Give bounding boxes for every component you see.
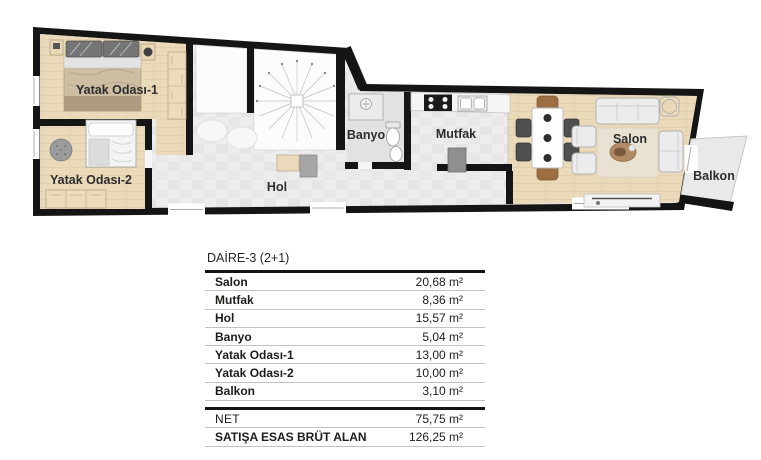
bath-sink-icon [390,147,402,162]
area-table: DAİRE-3 (2+1) Salon 20,68 m² Mutfak 8,36… [205,251,485,447]
room-name-label: Mutfak [215,293,254,307]
room-closet-floor [196,45,247,113]
table-row: Balkon 3,10 m² [205,383,485,401]
gross-value: 126,25 m² [409,430,463,444]
tv-console-icon [584,194,660,207]
rug-icon [50,139,72,161]
room-label-bedroom2: Yatak Odası-2 [50,173,132,187]
room-name-label: Hol [215,311,234,325]
net-label: NET [215,412,240,426]
kitchen-sink-icon [458,96,487,111]
apartment-title: DAİRE-3 (2+1) [205,251,485,273]
room-area-value: 5,04 m² [422,330,463,344]
shower-icon [349,94,383,120]
bedroom2-bed-icon [86,120,136,167]
room-area-value: 20,68 m² [416,275,463,289]
room-label-living: Salon [613,132,647,146]
table-row: Yatak Odası-2 10,00 m² [205,364,485,382]
table-row: Banyo 5,04 m² [205,328,485,346]
room-name-label: Yatak Odası-2 [215,366,294,380]
room-area-value: 13,00 m² [416,348,463,362]
room-area-value: 3,10 m² [422,384,463,398]
room-label-bedroom1: Yatak Odası-1 [76,83,158,97]
cooktop-icon [424,95,452,112]
room-name-label: Banyo [215,330,252,344]
room-name-label: Salon [215,275,248,289]
area-rows: Salon 20,68 m² Mutfak 8,36 m² Hol 15,57 … [205,273,485,401]
spiral-staircase-icon [254,49,338,150]
room-area-value: 15,57 m² [416,311,463,325]
bedroom1-wardrobe-icon [168,52,186,119]
table-row: Yatak Odası-1 13,00 m² [205,346,485,364]
room-label-kitchen: Mutfak [436,127,476,141]
net-value: 75,75 m² [416,412,463,426]
floor-plan: Yatak Odası-1 Yatak Odası-2 Hol Banyo Mu… [0,0,761,248]
gross-row: SATIŞA ESAS BRÜT ALAN 126,25 m² [205,428,485,446]
room-area-value: 8,36 m² [422,293,463,307]
page: Yatak Odası-1 Yatak Odası-2 Hol Banyo Mu… [0,0,761,460]
room-label-bathroom: Banyo [347,128,386,142]
room-area-value: 10,00 m² [416,366,463,380]
room-label-balcony: Balkon [693,169,735,183]
sofa-icon [596,98,659,124]
area-summary: NET 75,75 m² SATIŞA ESAS BRÜT ALAN 126,2… [205,407,485,447]
net-row: NET 75,75 m² [205,410,485,428]
room-name-label: Yatak Odası-1 [215,348,294,362]
kitchen-island [448,148,466,172]
room-name-label: Balkon [215,384,255,398]
toilet-icon [386,122,400,146]
bedroom2-wardrobe-icon [46,190,106,208]
table-row: Hol 15,57 m² [205,310,485,328]
table-row: Mutfak 8,36 m² [205,291,485,309]
table-row: Salon 20,68 m² [205,273,485,291]
room-label-hall: Hol [267,180,287,194]
gross-label: SATIŞA ESAS BRÜT ALAN [215,430,367,444]
